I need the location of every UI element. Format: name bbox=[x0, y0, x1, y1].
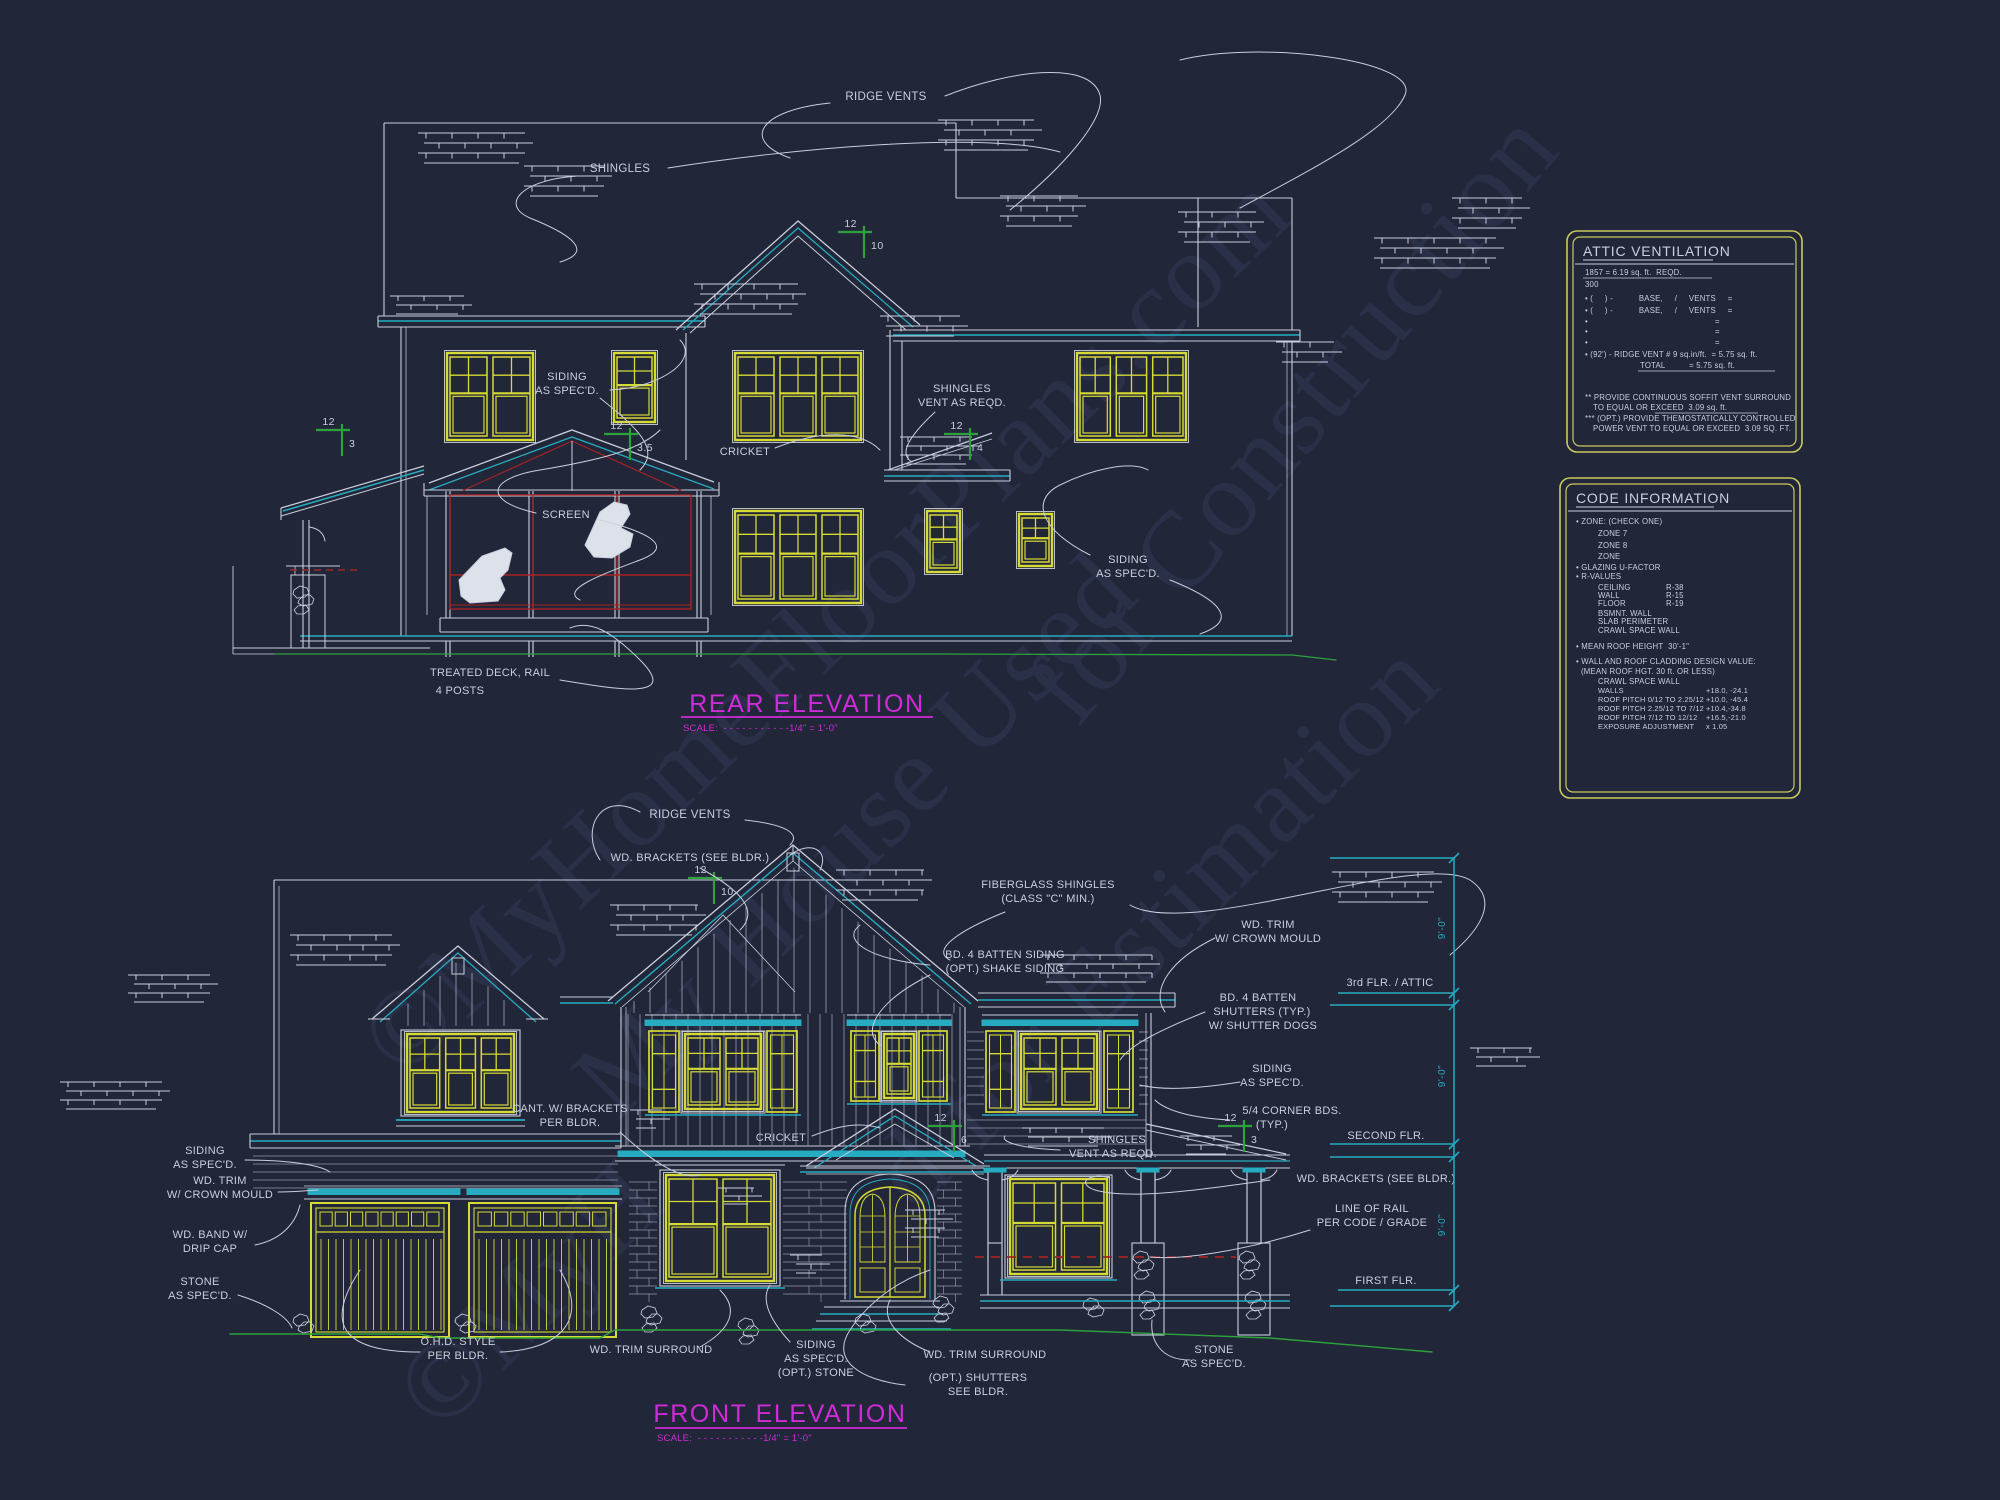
svg-text:10: 10 bbox=[871, 240, 884, 252]
svg-text:9'-0": 9'-0" bbox=[1437, 1065, 1448, 1087]
svg-text:ROOF PITCH 7/12 TO 12/12: ROOF PITCH 7/12 TO 12/12 bbox=[1598, 713, 1697, 722]
svg-text:(TYP.): (TYP.) bbox=[1256, 1119, 1288, 1131]
svg-text:RIDGE VENTS: RIDGE VENTS bbox=[649, 809, 730, 821]
svg-text:WD. BRACKETS (SEE BLDR.): WD. BRACKETS (SEE BLDR.) bbox=[1297, 1173, 1456, 1185]
svg-text:• GLAZING U-FACTOR: • GLAZING U-FACTOR bbox=[1576, 563, 1661, 572]
svg-text:(OPT.) SHAKE SIDING: (OPT.) SHAKE SIDING bbox=[946, 963, 1065, 975]
svg-text:CRAWL SPACE WALL: CRAWL SPACE WALL bbox=[1598, 677, 1680, 686]
svg-text:TO EQUAL OR EXCEED 3.09 sq. f: TO EQUAL OR EXCEED 3.09 sq. ft. bbox=[1593, 403, 1727, 412]
svg-text:WD. BAND W/: WD. BAND W/ bbox=[173, 1229, 248, 1241]
svg-text:+10.0, -45.4: +10.0, -45.4 bbox=[1706, 695, 1748, 704]
svg-text:+16.5,-21.0: +16.5,-21.0 bbox=[1706, 713, 1746, 722]
svg-text:12: 12 bbox=[844, 218, 857, 230]
svg-text:AS SPEC'D.: AS SPEC'D. bbox=[168, 1290, 232, 1302]
svg-text:AS SPEC'D.: AS SPEC'D. bbox=[1096, 568, 1160, 580]
svg-text:WD. TRIM: WD. TRIM bbox=[1241, 919, 1295, 931]
svg-text:R-19: R-19 bbox=[1666, 599, 1684, 608]
svg-text:ZONE 8: ZONE 8 bbox=[1598, 541, 1627, 550]
svg-text:300: 300 bbox=[1585, 280, 1599, 289]
svg-text:3: 3 bbox=[1251, 1134, 1257, 1146]
svg-text:BD. 4 BATTEN SIDING: BD. 4 BATTEN SIDING bbox=[945, 949, 1065, 961]
svg-text:WALLS: WALLS bbox=[1598, 686, 1624, 695]
svg-text:3: 3 bbox=[349, 438, 355, 450]
svg-text:3rd FLR. / ATTIC: 3rd FLR. / ATTIC bbox=[1346, 977, 1433, 989]
svg-text:SIDING: SIDING bbox=[796, 1339, 836, 1351]
svg-text:PER CODE / GRADE: PER CODE / GRADE bbox=[1317, 1217, 1428, 1229]
svg-text:CRICKET: CRICKET bbox=[756, 1132, 806, 1144]
svg-text:RIDGE VENTS: RIDGE VENTS bbox=[845, 91, 926, 103]
svg-text:SEE BLDR.: SEE BLDR. bbox=[948, 1386, 1008, 1398]
svg-text:ZONE 7: ZONE 7 bbox=[1598, 529, 1627, 538]
svg-text:WD. TRIM SURROUND: WD. TRIM SURROUND bbox=[924, 1349, 1047, 1361]
svg-text:SHUTTERS (TYP.): SHUTTERS (TYP.) bbox=[1213, 1006, 1310, 1018]
svg-text:EXPOSURE ADJUSTMENT: EXPOSURE ADJUSTMENT bbox=[1598, 722, 1694, 731]
svg-text:CRICKET: CRICKET bbox=[720, 446, 770, 458]
svg-text:AS SPEC'D.: AS SPEC'D. bbox=[1240, 1077, 1304, 1089]
svg-text:(MEAN ROOF HGT. 30 ft. OR LESS: (MEAN ROOF HGT. 30 ft. OR LESS) bbox=[1581, 667, 1715, 676]
svg-text:ROOF PITCH 2.25/12 TO 7/12: ROOF PITCH 2.25/12 TO 7/12 bbox=[1598, 704, 1704, 713]
svg-text:TREATED DECK, RAIL: TREATED DECK, RAIL bbox=[430, 667, 550, 679]
svg-text:=: = bbox=[1715, 317, 1720, 326]
svg-text:12: 12 bbox=[950, 420, 963, 432]
svg-text:SHINGLES: SHINGLES bbox=[590, 163, 651, 175]
svg-text:• ( ) - BASE,: • ( ) - BASE, / VENTS = bbox=[1585, 294, 1733, 303]
svg-text:• (92') - RIDGE VENT # 9 sq.in: • (92') - RIDGE VENT # 9 sq.in/ft. = 5.7… bbox=[1585, 350, 1757, 359]
svg-text:•: • bbox=[1585, 327, 1588, 336]
svg-text:O.H.D. STYLE: O.H.D. STYLE bbox=[420, 1336, 495, 1348]
svg-text:POWER VENT TO EQUAL OR EXCEED: POWER VENT TO EQUAL OR EXCEED 3.09 SQ. F… bbox=[1593, 424, 1791, 433]
svg-text:SHINGLES: SHINGLES bbox=[933, 383, 991, 395]
svg-text:•: • bbox=[1585, 317, 1588, 326]
svg-text:9'-0": 9'-0" bbox=[1437, 1214, 1448, 1236]
svg-text:12: 12 bbox=[694, 864, 707, 876]
svg-text:4: 4 bbox=[977, 442, 983, 454]
svg-text:5/4 CORNER BDS.: 5/4 CORNER BDS. bbox=[1242, 1105, 1341, 1117]
svg-text:+10.4,-34.8: +10.4,-34.8 bbox=[1706, 704, 1746, 713]
svg-text:VENT AS REQD.: VENT AS REQD. bbox=[918, 397, 1006, 409]
svg-text:6: 6 bbox=[961, 1134, 967, 1146]
svg-text:AS SPEC'D.: AS SPEC'D. bbox=[1182, 1358, 1246, 1370]
svg-text:SCALE: - - - - - - - - - - -1: SCALE: - - - - - - - - - - -1/4" = 1'-0" bbox=[657, 1433, 812, 1444]
svg-text:(CLASS "C" MIN.): (CLASS "C" MIN.) bbox=[1001, 893, 1094, 905]
svg-text:STONE: STONE bbox=[1194, 1344, 1233, 1356]
svg-text:FIBERGLASS SHINGLES: FIBERGLASS SHINGLES bbox=[981, 879, 1114, 891]
svg-text:WD. BRACKETS (SEE BLDR.): WD. BRACKETS (SEE BLDR.) bbox=[611, 852, 770, 864]
svg-text:** PROVIDE CONTINUOUS SOFFIT V: ** PROVIDE CONTINUOUS SOFFIT VENT SURROU… bbox=[1585, 393, 1791, 402]
svg-text:BD. 4 BATTEN: BD. 4 BATTEN bbox=[1220, 992, 1297, 1004]
svg-text:CODE INFORMATION: CODE INFORMATION bbox=[1576, 490, 1730, 506]
svg-text:PER BLDR.: PER BLDR. bbox=[428, 1350, 489, 1362]
svg-text:ROOF PITCH 0/12 TO 2.25/12: ROOF PITCH 0/12 TO 2.25/12 bbox=[1598, 695, 1704, 704]
svg-text:12: 12 bbox=[1224, 1112, 1237, 1124]
svg-text:12: 12 bbox=[322, 416, 335, 428]
svg-text:SIDING: SIDING bbox=[1108, 554, 1148, 566]
svg-text:SIDING: SIDING bbox=[547, 371, 587, 383]
svg-text:4 POSTS: 4 POSTS bbox=[436, 685, 485, 697]
svg-text:*** (OPT.) PROVIDE THEMOSTATIC: *** (OPT.) PROVIDE THEMOSTATICALLY CONTR… bbox=[1585, 414, 1796, 423]
svg-text:DRIP CAP: DRIP CAP bbox=[183, 1243, 237, 1255]
svg-text:AS SPEC'D.: AS SPEC'D. bbox=[535, 385, 599, 397]
svg-text:=: = bbox=[1715, 327, 1720, 336]
svg-text:•: • bbox=[1585, 338, 1588, 347]
svg-text:• ( ) - BASE,: • ( ) - BASE, / VENTS = bbox=[1585, 306, 1733, 315]
svg-text:(OPT.) STONE: (OPT.) STONE bbox=[778, 1367, 854, 1379]
svg-text:9'-0": 9'-0" bbox=[1437, 917, 1448, 939]
svg-text:CRAWL SPACE WALL: CRAWL SPACE WALL bbox=[1598, 626, 1680, 635]
svg-text:LINE OF RAIL: LINE OF RAIL bbox=[1335, 1203, 1409, 1215]
svg-text:W/ CROWN MOULD: W/ CROWN MOULD bbox=[1215, 933, 1321, 945]
svg-text:• WALL AND ROOF CLADDING DESIG: • WALL AND ROOF CLADDING DESIGN VALUE: bbox=[1576, 657, 1756, 666]
svg-text:10: 10 bbox=[721, 886, 734, 898]
svg-text:SECOND FLR.: SECOND FLR. bbox=[1347, 1130, 1424, 1142]
svg-text:W/ SHUTTER DOGS: W/ SHUTTER DOGS bbox=[1209, 1020, 1317, 1032]
svg-text:STONE: STONE bbox=[180, 1276, 219, 1288]
svg-text:AS SPEC'D.: AS SPEC'D. bbox=[173, 1159, 237, 1171]
svg-text:FRONT ELEVATION: FRONT ELEVATION bbox=[653, 1400, 906, 1428]
svg-text:PER BLDR.: PER BLDR. bbox=[540, 1117, 601, 1129]
svg-text:SIDING: SIDING bbox=[1252, 1063, 1292, 1075]
svg-text:=: = bbox=[1715, 338, 1720, 347]
svg-text:12: 12 bbox=[610, 420, 623, 432]
svg-text:1857 = 6.19 sq. ft. REQD.: 1857 = 6.19 sq. ft. REQD. bbox=[1585, 268, 1682, 277]
svg-text:WD. TRIM: WD. TRIM bbox=[193, 1175, 247, 1187]
svg-text:VENT AS REQD.: VENT AS REQD. bbox=[1069, 1148, 1157, 1160]
svg-text:SHINGLES: SHINGLES bbox=[1088, 1134, 1146, 1146]
svg-text:(OPT.) SHUTTERS: (OPT.) SHUTTERS bbox=[929, 1372, 1028, 1384]
svg-text:• R-VALUES: • R-VALUES bbox=[1576, 572, 1621, 581]
svg-text:• ZONE: (CHECK ONE): • ZONE: (CHECK ONE) bbox=[1576, 517, 1662, 526]
svg-text:ZONE: ZONE bbox=[1598, 552, 1620, 561]
svg-text:SLAB PERIMETER: SLAB PERIMETER bbox=[1598, 617, 1669, 626]
svg-text:W/ CROWN MOULD: W/ CROWN MOULD bbox=[167, 1189, 273, 1201]
svg-text:SCREEN: SCREEN bbox=[542, 509, 590, 521]
svg-text:FIRST FLR.: FIRST FLR. bbox=[1355, 1275, 1416, 1287]
svg-text:TOTAL = 5.75 sq. ft.: TOTAL = 5.75 sq. ft. bbox=[1640, 361, 1735, 370]
svg-text:SIDING: SIDING bbox=[185, 1145, 225, 1157]
svg-text:• MEAN ROOF HEIGHT 30'-1": • MEAN ROOF HEIGHT 30'-1" bbox=[1576, 642, 1689, 651]
svg-text:+18.0, -24.1: +18.0, -24.1 bbox=[1706, 686, 1748, 695]
svg-text:FLOOR: FLOOR bbox=[1598, 599, 1626, 608]
svg-text:WD. TRIM SURROUND: WD. TRIM SURROUND bbox=[590, 1344, 713, 1356]
svg-text:SCALE: - - - - - - - - - - -1: SCALE: - - - - - - - - - - -1/4" = 1'-0" bbox=[683, 723, 838, 734]
svg-text:CANT. W/ BRACKETS: CANT. W/ BRACKETS bbox=[512, 1103, 628, 1115]
svg-text:REAR ELEVATION: REAR ELEVATION bbox=[689, 690, 924, 718]
svg-text:12: 12 bbox=[934, 1112, 947, 1124]
svg-text:AS SPEC'D.: AS SPEC'D. bbox=[784, 1353, 848, 1365]
svg-text:ATTIC VENTILATION: ATTIC VENTILATION bbox=[1583, 243, 1731, 259]
svg-text:x 1.05: x 1.05 bbox=[1706, 722, 1727, 731]
